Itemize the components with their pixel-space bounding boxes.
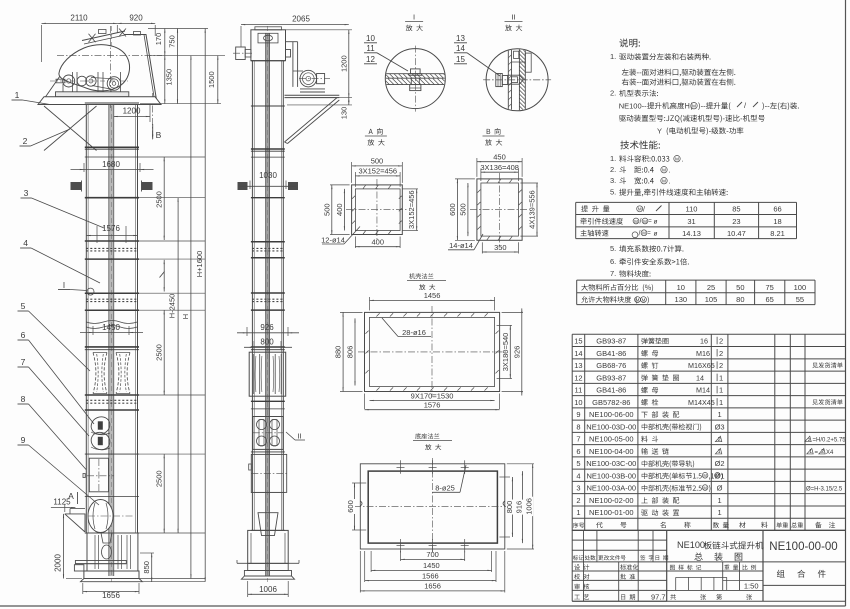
svg-text:5.: 5. [610, 188, 616, 197]
svg-text:1: 1 [719, 386, 723, 395]
svg-text:M: M [643, 219, 647, 224]
svg-text:9X170=1530: 9X170=1530 [411, 391, 454, 400]
svg-text:1576: 1576 [424, 401, 441, 410]
svg-text:105: 105 [705, 295, 718, 304]
svg-text:2500: 2500 [155, 470, 164, 487]
svg-text:55: 55 [796, 295, 804, 304]
svg-text:750: 750 [168, 35, 177, 48]
svg-text:12: 12 [366, 55, 375, 64]
svg-text:14-ø14: 14-ø14 [449, 241, 473, 250]
svg-text:M16: M16 [696, 349, 710, 358]
svg-text:A: A [68, 491, 74, 501]
svg-text:850: 850 [142, 561, 151, 574]
svg-text:400: 400 [335, 203, 344, 216]
svg-text:7: 7 [21, 357, 26, 367]
svg-text:1576: 1576 [102, 224, 120, 233]
svg-text:8: 8 [576, 422, 580, 431]
svg-text:Ø=H-3.15/2.5: Ø=H-3.15/2.5 [806, 487, 843, 493]
svg-text:M: M [634, 219, 638, 224]
svg-text:110: 110 [686, 205, 698, 214]
svg-text:50: 50 [736, 283, 744, 292]
svg-text:NE100-01-00: NE100-01-00 [589, 508, 634, 517]
svg-text:H+1600: H+1600 [195, 251, 204, 277]
svg-text:H: H [181, 314, 190, 319]
svg-text:85: 85 [732, 205, 740, 214]
svg-text:65: 65 [766, 295, 774, 304]
svg-text:1450: 1450 [423, 561, 440, 570]
svg-text:GB41-86: GB41-86 [596, 386, 626, 395]
svg-text:2: 2 [719, 361, 723, 370]
svg-text:M: M [642, 231, 646, 236]
svg-text:ø: ø [654, 231, 658, 238]
svg-text:1: 1 [718, 508, 722, 517]
svg-text:.: . [669, 177, 671, 186]
svg-text:12-ø14: 12-ø14 [321, 235, 345, 244]
svg-text:1656: 1656 [102, 591, 120, 600]
svg-text:14.13: 14.13 [682, 229, 701, 238]
svg-text:926: 926 [260, 323, 274, 332]
svg-text:13: 13 [574, 361, 582, 370]
svg-text:1350: 1350 [165, 69, 174, 86]
svg-text:NE100-05-00: NE100-05-00 [589, 435, 634, 444]
svg-text:4X139=556: 4X139=556 [528, 190, 537, 229]
svg-text:1456: 1456 [424, 291, 441, 300]
svg-text:1680: 1680 [102, 160, 120, 169]
svg-text:NE100-00-00: NE100-00-00 [769, 541, 837, 553]
svg-text:3X152=456: 3X152=456 [407, 190, 416, 229]
svg-text:8.21: 8.21 [770, 229, 785, 238]
svg-text:X4: X4 [826, 450, 834, 456]
svg-text:Y: Y [657, 127, 662, 136]
svg-text:NE100-03A-00: NE100-03A-00 [586, 484, 636, 493]
svg-text:2: 2 [821, 449, 824, 455]
svg-text:M14: M14 [696, 386, 710, 395]
svg-text:1200: 1200 [123, 107, 141, 116]
svg-text:M: M [703, 473, 707, 478]
svg-text:80: 80 [736, 295, 744, 304]
svg-text:4: 4 [576, 471, 580, 480]
svg-text:920: 920 [129, 14, 143, 23]
svg-text:I: I [413, 13, 415, 22]
svg-text:14: 14 [696, 373, 704, 382]
svg-text:B: B [156, 130, 162, 140]
svg-text:700: 700 [426, 550, 439, 559]
svg-text:1: 1 [718, 410, 722, 419]
svg-text:800: 800 [505, 501, 514, 514]
svg-text:3X180=540: 3X180=540 [501, 333, 510, 372]
svg-text:18: 18 [773, 217, 781, 226]
svg-text:4: 4 [23, 238, 28, 248]
svg-text:1006: 1006 [259, 585, 277, 594]
svg-text:1500: 1500 [207, 71, 216, 88]
svg-text:2: 2 [719, 349, 723, 358]
svg-text:1:50: 1:50 [744, 582, 759, 591]
svg-text:=: = [815, 450, 819, 456]
svg-text:100: 100 [794, 283, 807, 292]
svg-text:M: M [703, 485, 707, 490]
svg-text:500: 500 [322, 203, 331, 216]
svg-text:1200: 1200 [339, 55, 348, 72]
svg-text:10.47: 10.47 [727, 229, 746, 238]
svg-text:13: 13 [456, 34, 465, 43]
svg-text:2.: 2. [610, 89, 616, 98]
svg-text:M: M [638, 207, 642, 212]
svg-text:880: 880 [334, 346, 343, 359]
svg-text:NE100: NE100 [677, 540, 705, 550]
svg-text:170: 170 [154, 33, 163, 46]
svg-text:/: / [643, 207, 645, 214]
svg-text:130: 130 [339, 107, 348, 120]
svg-text:23: 23 [732, 217, 740, 226]
svg-text:2: 2 [719, 337, 723, 346]
svg-text:10: 10 [677, 283, 685, 292]
svg-text:500: 500 [371, 157, 384, 166]
svg-text:M: M [692, 104, 696, 110]
svg-text:12: 12 [574, 373, 582, 382]
svg-text:1566: 1566 [422, 571, 439, 580]
svg-text:2.: 2. [610, 165, 616, 174]
svg-text:GB93-87: GB93-87 [596, 373, 626, 382]
svg-text:800: 800 [260, 338, 274, 347]
svg-text:350: 350 [494, 243, 507, 252]
svg-text:10: 10 [574, 398, 582, 407]
svg-text:2: 2 [23, 136, 28, 146]
svg-text:2500: 2500 [155, 191, 164, 208]
svg-text:M: M [662, 179, 666, 185]
svg-text:5: 5 [576, 459, 580, 468]
svg-text:M: M [675, 157, 679, 163]
svg-text:1656: 1656 [424, 582, 441, 591]
svg-text:1: 1 [719, 398, 723, 407]
svg-text:10: 10 [366, 34, 375, 43]
svg-text:GB68-76: GB68-76 [596, 361, 626, 370]
svg-text:5.: 5. [610, 244, 616, 253]
svg-text:11: 11 [366, 44, 375, 53]
svg-text:8-ø25: 8-ø25 [435, 484, 455, 493]
svg-text:8: 8 [21, 394, 26, 404]
svg-text:=H/0.2+5.75: =H/0.2+5.75 [813, 438, 847, 444]
svg-text:II: II [297, 432, 301, 441]
svg-text:1.: 1. [610, 52, 616, 61]
svg-text:2: 2 [718, 437, 721, 443]
svg-text:NE100-03B-00: NE100-03B-00 [586, 471, 636, 480]
svg-text:2000: 2000 [54, 554, 63, 572]
svg-text:Ø2: Ø2 [715, 459, 725, 468]
svg-text:1: 1 [718, 449, 721, 455]
svg-text:GB93-87: GB93-87 [596, 337, 626, 346]
svg-text:75: 75 [766, 283, 774, 292]
svg-text:1030: 1030 [259, 171, 277, 180]
svg-text:M16X65: M16X65 [688, 361, 715, 370]
svg-text:66: 66 [773, 205, 781, 214]
svg-text:Ø1: Ø1 [715, 471, 725, 480]
svg-text:M: M [642, 297, 646, 302]
svg-text:3X152=456: 3X152=456 [358, 167, 397, 176]
svg-text:1.: 1. [610, 154, 616, 163]
svg-text:9: 9 [576, 410, 580, 419]
svg-text:3: 3 [576, 484, 580, 493]
svg-text:600: 600 [346, 500, 355, 513]
svg-text:926: 926 [512, 346, 521, 359]
svg-text:3: 3 [24, 188, 29, 198]
svg-text:I: I [63, 281, 65, 290]
svg-text:25: 25 [707, 283, 715, 292]
svg-text:=: = [647, 231, 651, 237]
svg-text:15: 15 [574, 337, 582, 346]
svg-text:7: 7 [576, 435, 580, 444]
svg-text:2: 2 [576, 496, 580, 505]
svg-text:.: . [669, 166, 671, 175]
svg-text:1006: 1006 [524, 498, 533, 515]
svg-text:Ø: Ø [717, 484, 723, 493]
svg-text:1: 1 [15, 90, 20, 100]
svg-text:14: 14 [456, 44, 465, 53]
svg-text:5: 5 [21, 301, 26, 311]
svg-text:M: M [662, 168, 666, 174]
svg-text:6: 6 [576, 447, 580, 456]
svg-text:450: 450 [493, 153, 506, 162]
svg-text:31: 31 [687, 217, 695, 226]
svg-text:500: 500 [458, 203, 467, 216]
svg-text:7.: 7. [610, 269, 616, 278]
svg-text:=: = [648, 219, 652, 225]
svg-text:GB41-86: GB41-86 [596, 349, 626, 358]
svg-text:.: . [682, 155, 684, 164]
svg-text:NE100-06-00: NE100-06-00 [589, 410, 634, 419]
svg-text:3.: 3. [610, 176, 616, 185]
svg-text:H-2450: H-2450 [168, 294, 177, 319]
svg-text:Ø3: Ø3 [715, 422, 725, 431]
svg-text:ø: ø [654, 219, 658, 226]
svg-text:6: 6 [21, 330, 26, 340]
svg-text:916: 916 [514, 501, 523, 514]
svg-text:15: 15 [456, 55, 465, 64]
svg-text:16: 16 [700, 337, 708, 346]
svg-text:28-ø16: 28-ø16 [402, 328, 426, 337]
svg-text:130: 130 [675, 295, 688, 304]
svg-text:M14X45: M14X45 [688, 398, 715, 407]
svg-text:806: 806 [346, 346, 355, 359]
svg-text:/: / [640, 219, 642, 226]
svg-text:NE100-02-00: NE100-02-00 [589, 496, 634, 505]
svg-text:9: 9 [21, 435, 26, 445]
svg-text:1: 1 [809, 449, 812, 455]
svg-text:3X136=408: 3X136=408 [480, 163, 519, 172]
svg-text:600: 600 [448, 203, 457, 216]
svg-text:NE100--: NE100-- [619, 102, 647, 111]
svg-text:1450: 1450 [102, 323, 120, 332]
svg-text:6.: 6. [610, 257, 616, 266]
svg-text:2065: 2065 [292, 15, 310, 24]
svg-text:NE100-03D-00: NE100-03D-00 [586, 422, 636, 431]
svg-text:2110: 2110 [70, 14, 88, 23]
svg-text:400: 400 [371, 238, 384, 247]
svg-text:M: M [636, 297, 640, 302]
svg-text:1: 1 [719, 373, 723, 382]
svg-text:1: 1 [718, 496, 722, 505]
svg-text:GB5782-86: GB5782-86 [592, 398, 630, 407]
svg-text:/: / [639, 231, 641, 238]
svg-text:11: 11 [575, 386, 583, 395]
svg-text:II: II [511, 13, 515, 22]
svg-text:14: 14 [574, 349, 582, 358]
svg-text:1: 1 [576, 508, 580, 517]
svg-text:NE100-04-00: NE100-04-00 [589, 447, 634, 456]
svg-text:2500: 2500 [155, 344, 164, 361]
svg-text:NE100-03C-00: NE100-03C-00 [586, 459, 636, 468]
svg-text:97.7: 97.7 [651, 592, 666, 601]
